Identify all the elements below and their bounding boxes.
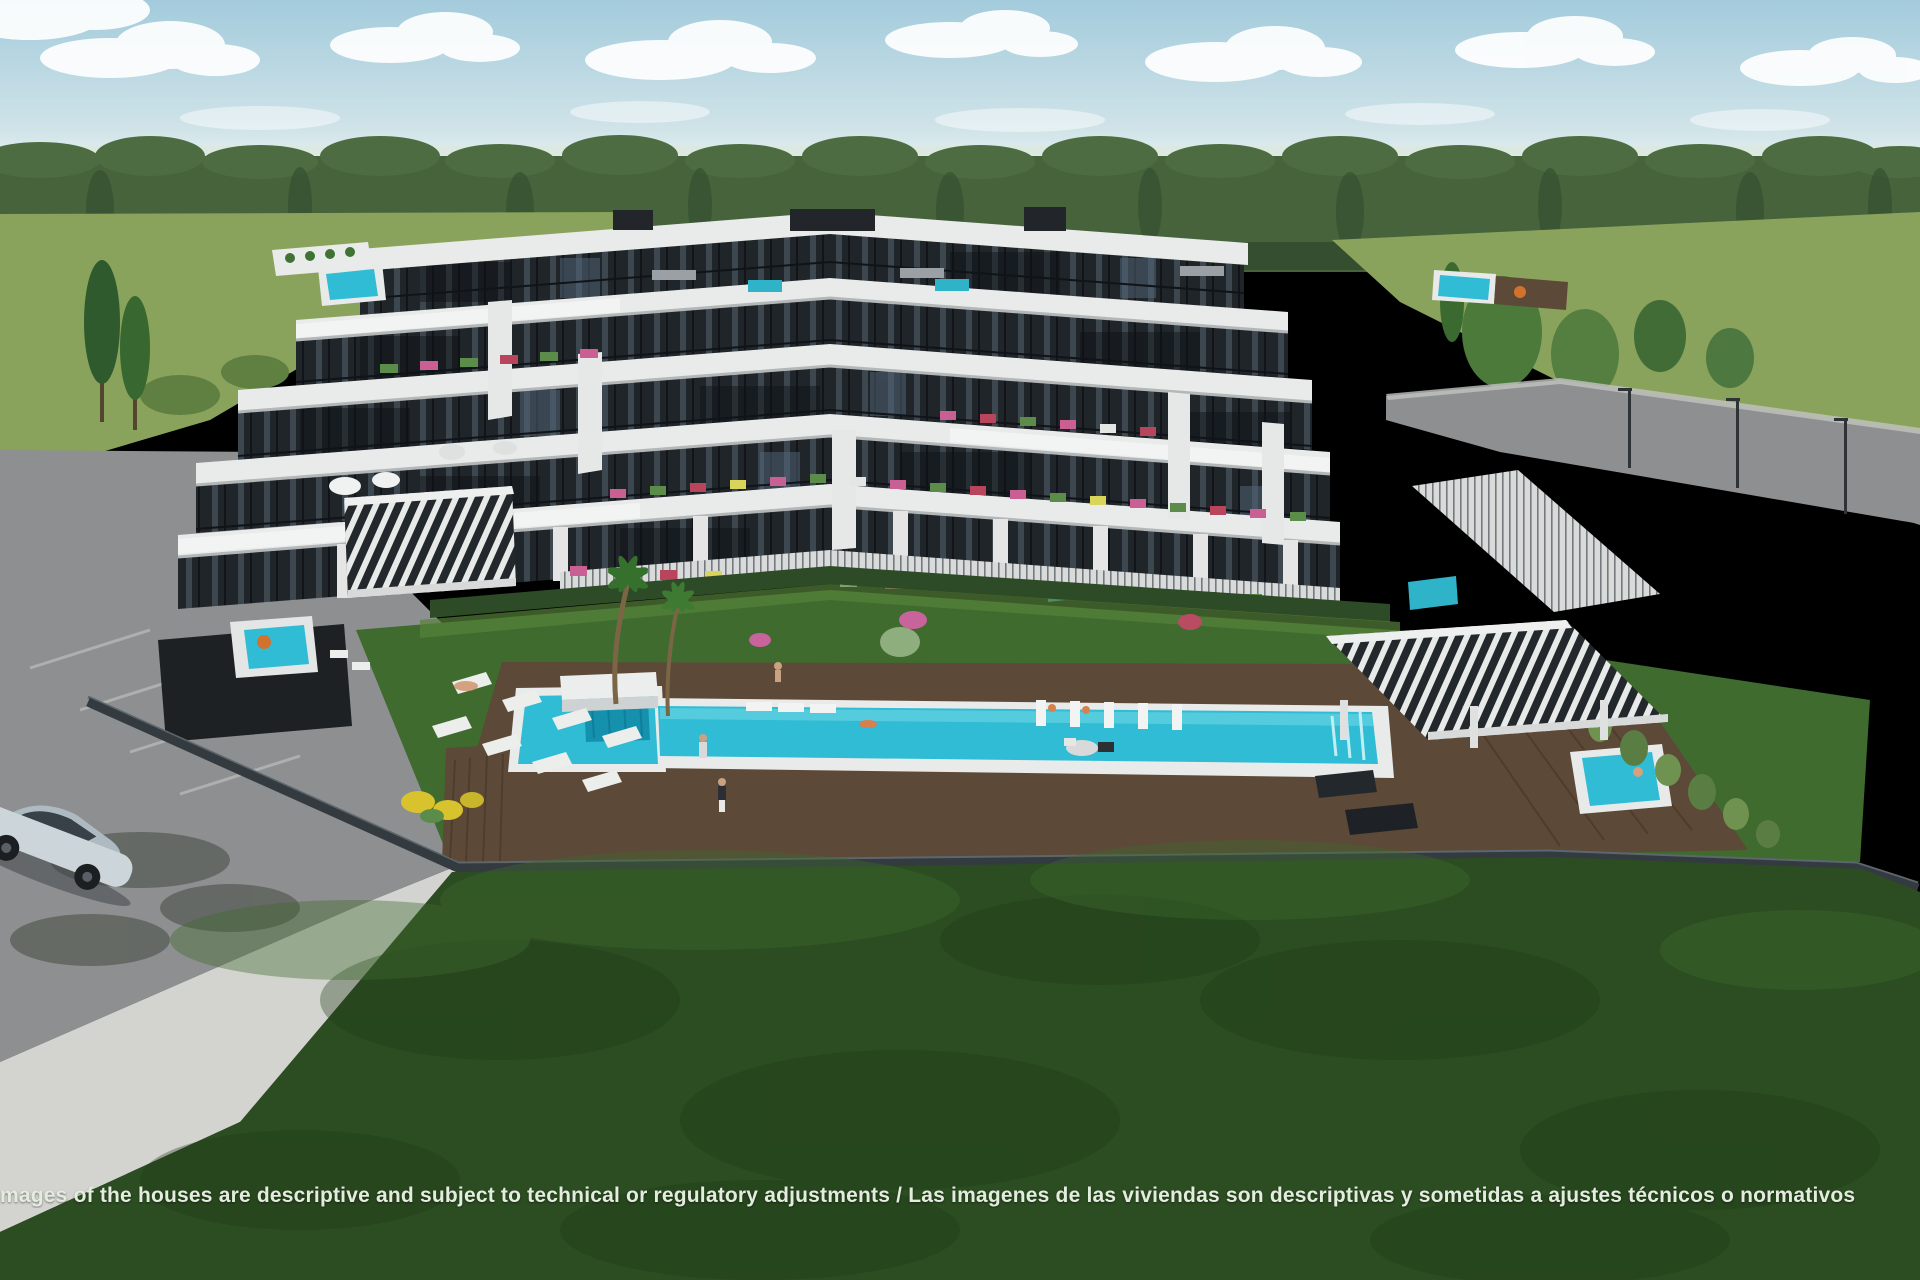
- person-on-lounger: [454, 681, 478, 691]
- turquoise-sofa-right: [1408, 576, 1458, 610]
- disclaimer-text: mages of the houses are descriptive and …: [0, 1184, 1920, 1208]
- person-diving: [774, 662, 782, 682]
- right-terrace-deck: [1494, 276, 1568, 310]
- pool-platform: [560, 672, 658, 700]
- person-poolside: [699, 734, 707, 758]
- terrace-parasol: [1514, 286, 1526, 298]
- sky: [0, 0, 1920, 170]
- render-scene: [0, 0, 1920, 1280]
- left-private-pool: [244, 625, 309, 669]
- swimmer: [859, 720, 877, 728]
- architectural-render: mages of the houses are descriptive and …: [0, 0, 1920, 1280]
- orange-parasol: [257, 635, 271, 649]
- left-pergola: [344, 486, 516, 598]
- person-standing: [718, 778, 726, 812]
